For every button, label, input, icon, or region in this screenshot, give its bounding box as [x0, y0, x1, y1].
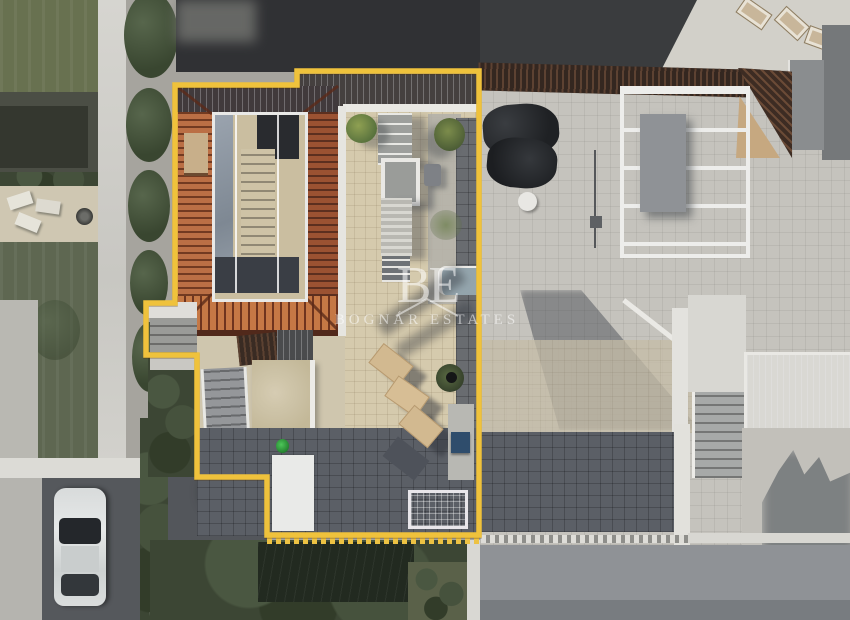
upper-landing: [688, 295, 746, 392]
gray-block: [788, 60, 824, 150]
storage-box: [272, 455, 314, 531]
wall-below-bump: [150, 356, 197, 370]
roof-top-band: [176, 86, 338, 114]
louver-shade-gray: [277, 330, 313, 360]
bump-side-steps: [150, 318, 197, 354]
watering-can: [276, 439, 289, 453]
plant-bush: [346, 114, 377, 143]
white-wall-band: [0, 458, 146, 478]
mossy-bush: [408, 562, 470, 620]
white-band-right: [688, 533, 850, 543]
car: [54, 488, 106, 606]
neighbour-dark-patio: [480, 432, 674, 532]
atrium-stairs: [241, 149, 275, 273]
gray-block: [822, 25, 850, 160]
car-rear-window: [61, 574, 99, 596]
neighbour-stairs: [692, 392, 748, 478]
white-parapet: [674, 424, 690, 545]
garden-hose: [594, 150, 596, 248]
hedge-row: [0, 172, 98, 186]
plant-bush: [434, 118, 465, 151]
lawn-top-left: [0, 0, 98, 92]
tree: [126, 88, 172, 162]
tree: [128, 170, 170, 242]
neighbour-dark-roof: [480, 0, 697, 68]
pool-equipment-box: [451, 432, 470, 453]
atrium-mullion: [277, 115, 279, 293]
football-goal: [408, 490, 468, 529]
pool-cover: [0, 106, 88, 168]
pergola-furniture: [640, 114, 686, 212]
round-table: [518, 192, 537, 211]
fire-pit: [76, 208, 93, 225]
atrium-mullion: [235, 115, 237, 293]
car-roof: [61, 546, 99, 572]
dentil-wall-yellow: [267, 537, 481, 544]
dentil-wall-white: [481, 535, 688, 543]
plant-sparse: [430, 210, 462, 240]
bump-white-wall: [146, 302, 197, 318]
side-chair: [424, 164, 441, 186]
stone-table: [252, 360, 315, 432]
road-dark-strip: [480, 600, 850, 620]
car-windshield: [59, 518, 101, 544]
photo-layer: [0, 0, 850, 620]
white-strip: [467, 540, 480, 620]
atrium: [212, 112, 308, 302]
drain-mat: [590, 216, 602, 228]
roof-gutter-wall: [338, 106, 346, 336]
aerial-photo: BE BOGNÁR ESTATES: [0, 0, 850, 620]
side-path: [0, 300, 38, 462]
tree: [124, 0, 178, 78]
courtyard-gray-corner: [176, 0, 256, 42]
dark-hedge-wall: [258, 542, 414, 602]
hedge-below-bump: [148, 355, 197, 477]
plant-pot: [446, 372, 457, 383]
path-bottom-left: [0, 478, 42, 620]
terrace-steps: [382, 256, 410, 282]
atrium-bottom-shade: [215, 257, 299, 293]
roof-dormer: [184, 133, 208, 176]
beige-pavers: [480, 340, 702, 433]
lounger-striped: [381, 198, 412, 256]
